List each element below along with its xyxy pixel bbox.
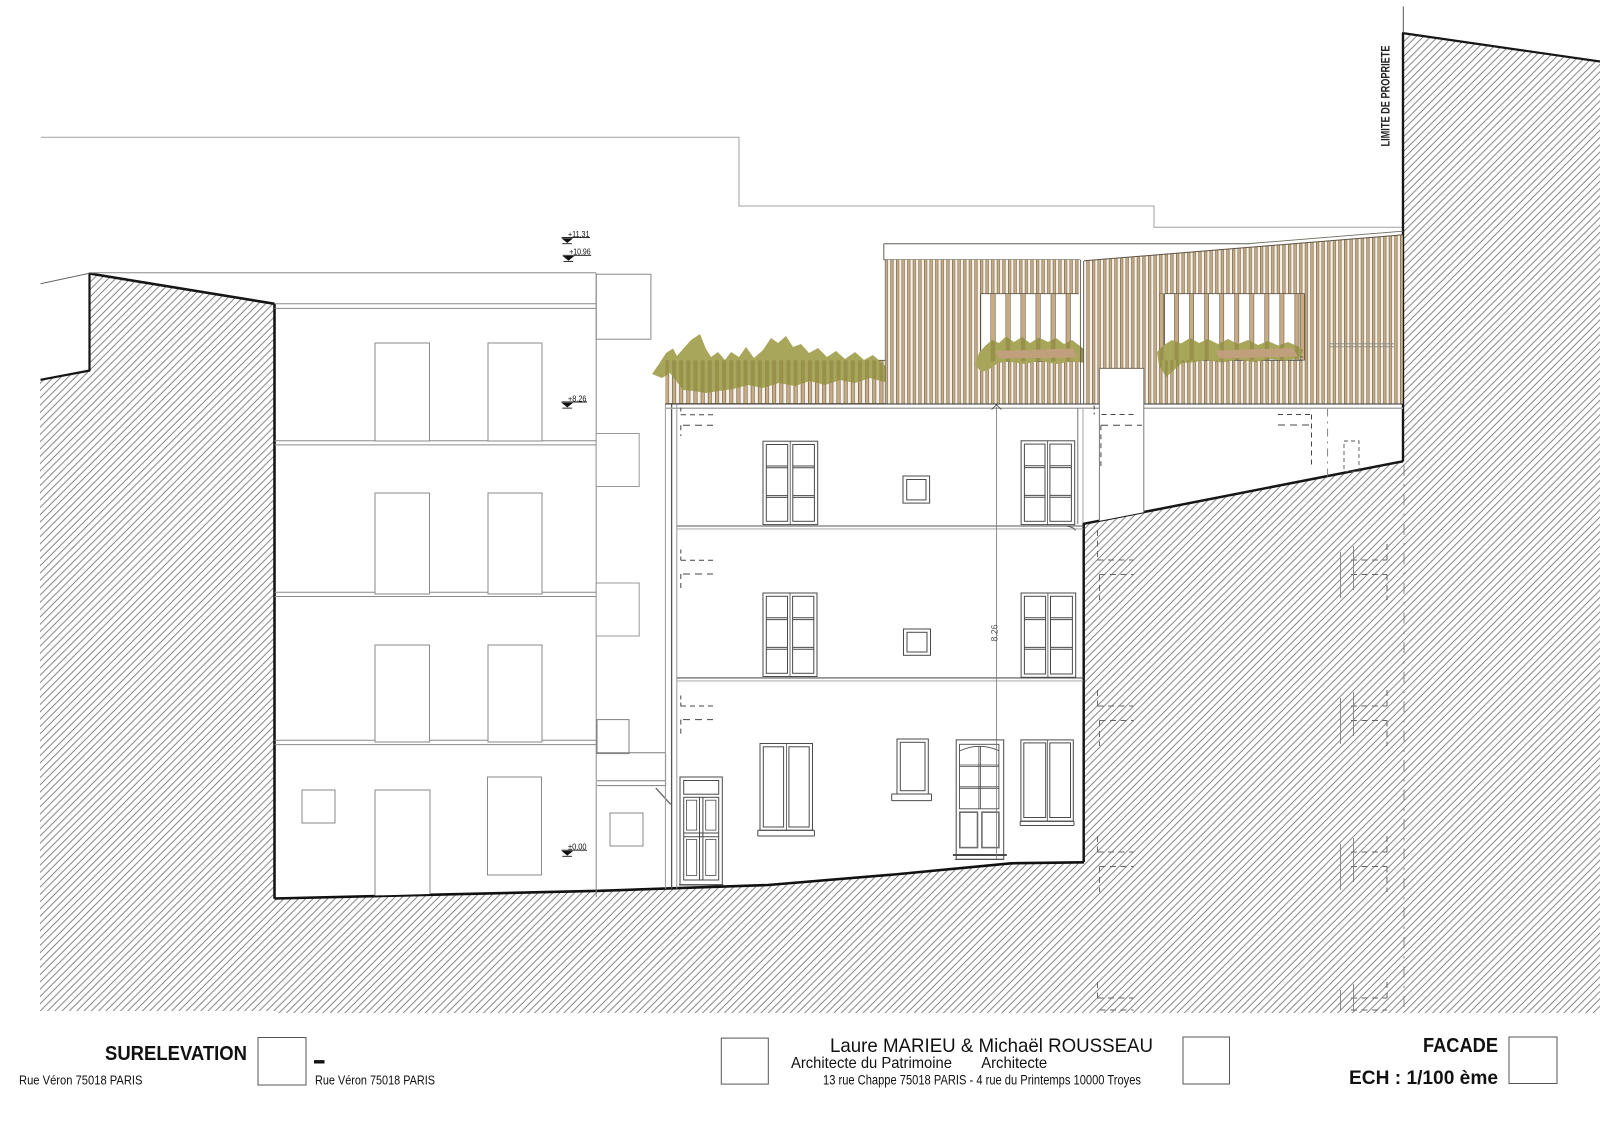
svg-text:LIMITE DE PROPRIETE: LIMITE DE PROPRIETE xyxy=(1381,45,1393,146)
svg-text:Architecte du Patrimoine: Architecte du Patrimoine xyxy=(791,1055,952,1072)
svg-text:Laure MARIEU & Michaël ROUSS: Laure MARIEU & Michaël ROUSSEAU xyxy=(830,1035,1153,1057)
svg-text:Rue Véron 75018 PARIS: Rue Véron 75018 PARIS xyxy=(315,1073,435,1088)
svg-text:ECH : 1/100 ème: ECH : 1/100 ème xyxy=(1349,1068,1498,1089)
svg-text:8.26: 8.26 xyxy=(990,625,1000,642)
svg-text:SURELEVATION: SURELEVATION xyxy=(105,1043,247,1065)
svg-text:FACADE: FACADE xyxy=(1423,1035,1498,1057)
svg-text:Architecte: Architecte xyxy=(981,1055,1047,1072)
svg-text:13 rue Chappe 75018 PARIS - 4: 13 rue Chappe 75018 PARIS - 4 rue du Pri… xyxy=(823,1073,1141,1088)
svg-text:Rue Véron 75018 PARIS: Rue Véron 75018 PARIS xyxy=(19,1073,143,1088)
